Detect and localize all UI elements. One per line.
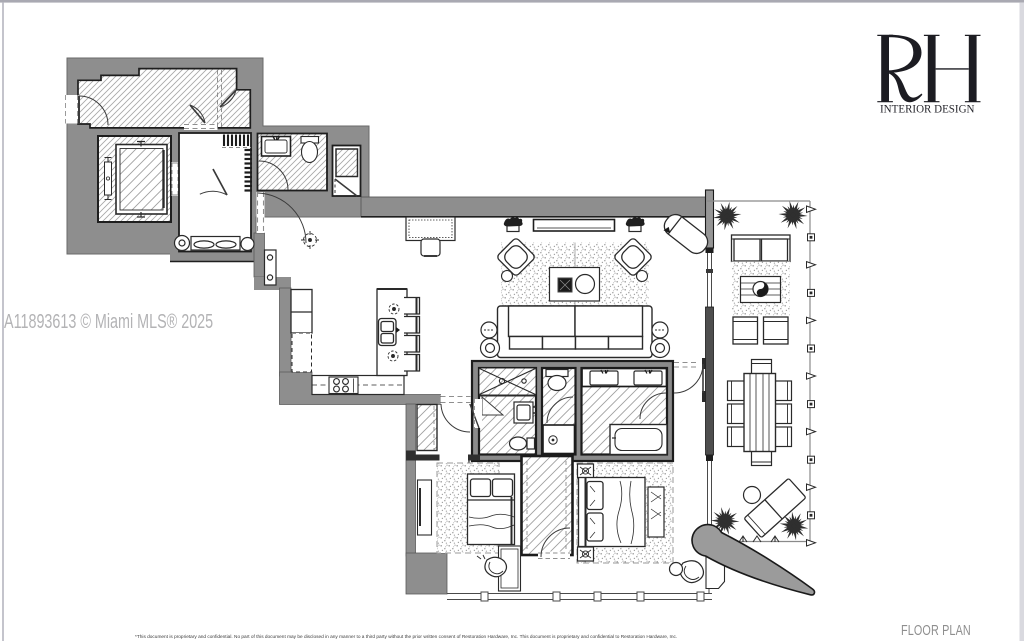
svg-text:INTERIOR DESIGN: INTERIOR DESIGN: [880, 104, 975, 116]
